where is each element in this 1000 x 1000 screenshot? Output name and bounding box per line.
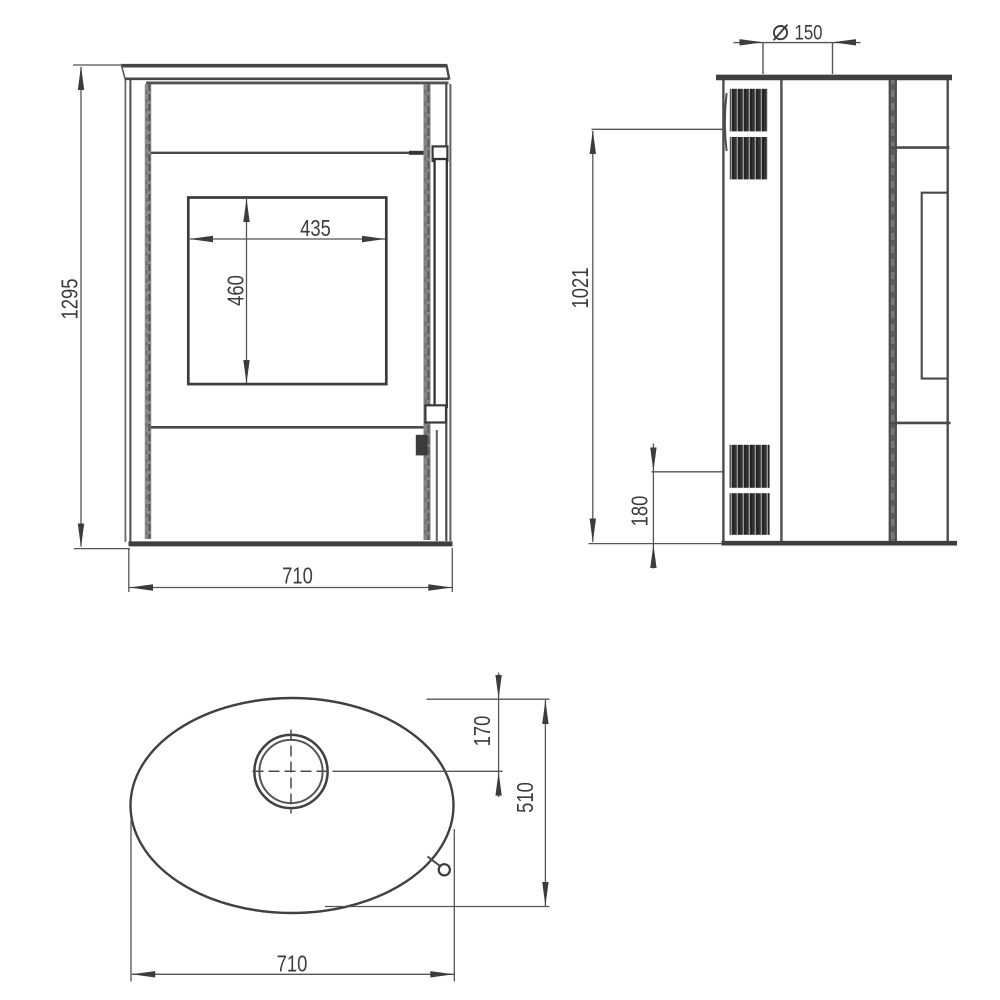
svg-text:180: 180 [628,496,653,527]
svg-text:150: 150 [794,22,822,45]
svg-text:1295: 1295 [58,279,83,320]
svg-text:1021: 1021 [568,268,593,309]
svg-text:710: 710 [277,952,308,977]
svg-text:170: 170 [470,716,495,747]
svg-text:435: 435 [300,216,331,241]
svg-text:510: 510 [513,782,538,813]
svg-text:460: 460 [224,275,249,306]
svg-text:710: 710 [282,564,313,589]
